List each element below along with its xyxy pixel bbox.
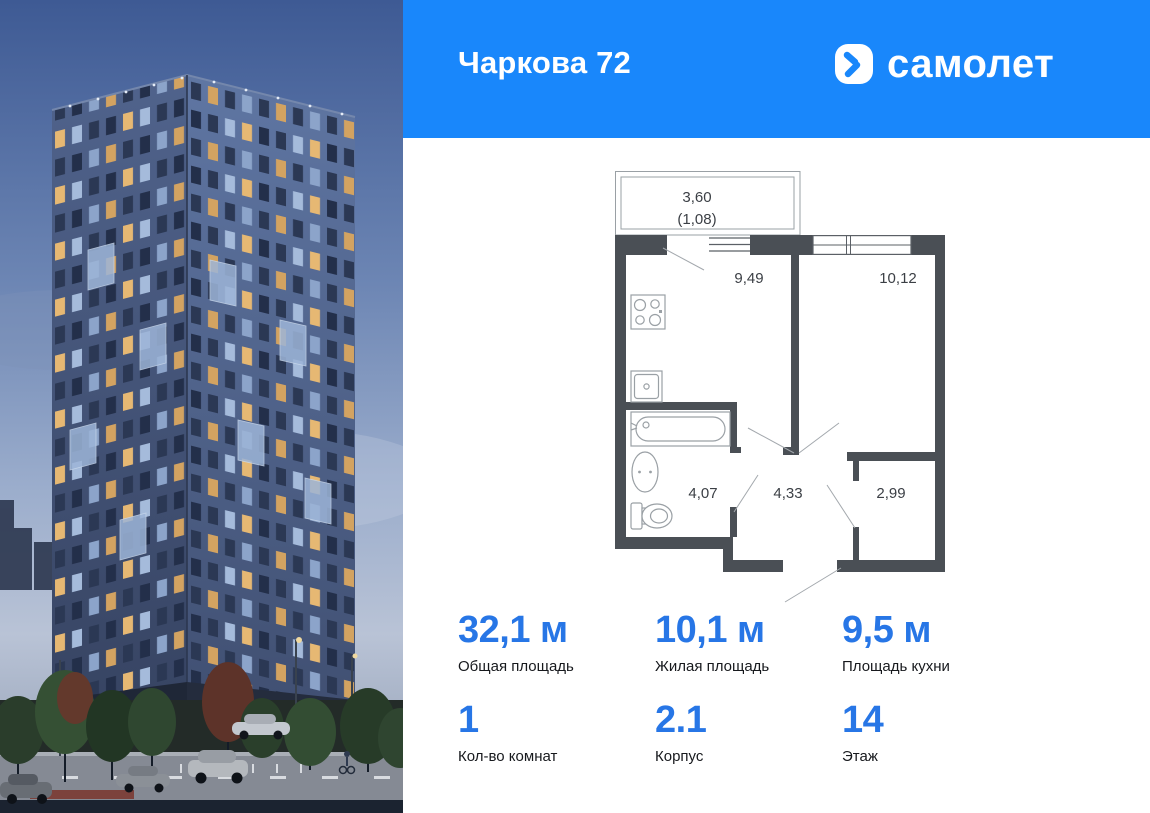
hallway-area-label: 4,33 <box>773 485 802 502</box>
stat-value: 32,1 м <box>458 610 648 650</box>
wardrobe-area-label: 2,99 <box>876 485 905 502</box>
kitchen-stove-icon <box>631 295 665 329</box>
stat-rooms-count: 1 Кол-во комнат <box>458 700 648 766</box>
stat-value: 9,5 м <box>842 610 1032 650</box>
listing-card: Чаркова 72 самолет <box>0 0 1150 813</box>
page-title: Чаркова 72 <box>458 44 631 82</box>
stat-kitchen-area: 9,5 м Площадь кухни <box>842 610 1032 676</box>
stat-label: Площадь кухни <box>842 658 1032 676</box>
header: Чаркова 72 самолет <box>403 0 1150 138</box>
stat-value: 1 <box>458 700 648 740</box>
balcony-reduced-label: (1,08) <box>677 211 716 228</box>
stat-value: 2.1 <box>655 700 845 740</box>
kitchen-sink-icon <box>631 371 662 402</box>
entrance-door-swing <box>785 568 841 602</box>
bathtub-icon <box>631 412 730 446</box>
balcony-area-label: 3,60 <box>682 189 711 206</box>
kitchen-area-label: 9,49 <box>734 270 763 287</box>
floor-plan: 3,60 (1,08) 9,49 10,12 4,07 4,33 2,99 <box>615 171 945 607</box>
stat-value: 14 <box>842 700 1032 740</box>
kitchen-window <box>709 238 750 251</box>
samolet-logo-icon <box>835 44 873 84</box>
stat-label: Этаж <box>842 748 1032 766</box>
brand-name: самолет <box>887 44 1054 84</box>
stat-label: Жилая площадь <box>655 658 845 676</box>
stat-label: Корпус <box>655 748 845 766</box>
stat-total-area: 32,1 м Общая площадь <box>458 610 648 676</box>
bedroom-window <box>813 236 911 255</box>
stat-floor: 14 Этаж <box>842 700 1032 766</box>
building-photo <box>0 0 403 813</box>
stat-living-area: 10,1 м Жилая площадь <box>655 610 845 676</box>
bedroom-area-label: 10,12 <box>879 270 917 287</box>
bathroom-sink-icon <box>632 452 658 492</box>
stat-value: 10,1 м <box>655 610 845 650</box>
bathroom-area-label: 4,07 <box>688 485 717 502</box>
stat-building: 2.1 Корпус <box>655 700 845 766</box>
stat-label: Кол-во комнат <box>458 748 648 766</box>
toilet-icon <box>631 503 672 529</box>
stat-label: Общая площадь <box>458 658 648 676</box>
brand-logo: самолет <box>835 44 1054 84</box>
